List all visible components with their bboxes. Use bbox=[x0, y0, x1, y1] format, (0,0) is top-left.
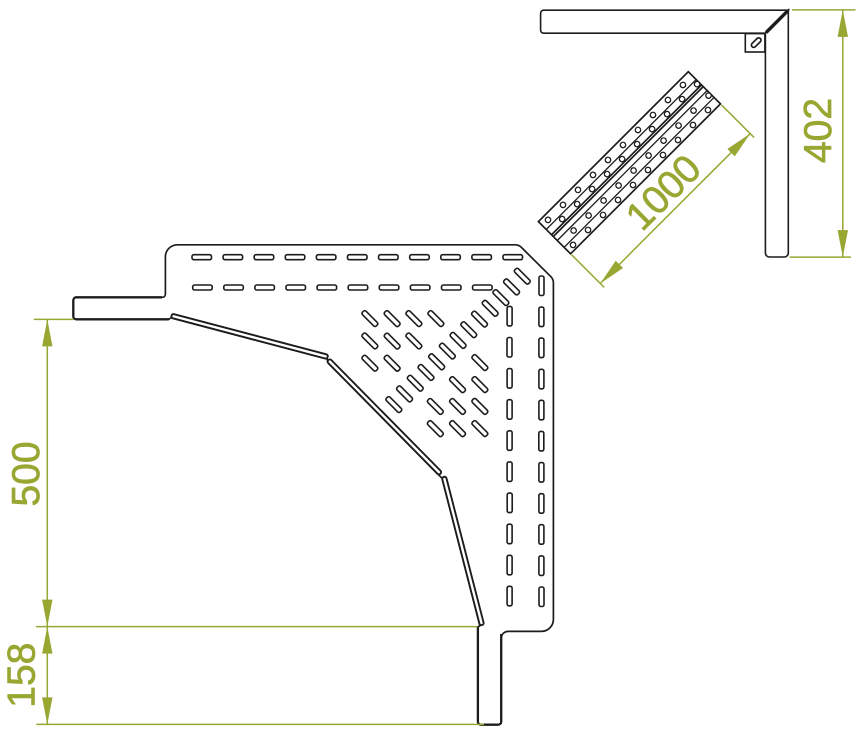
svg-text:158: 158 bbox=[1, 643, 44, 708]
svg-text:500: 500 bbox=[5, 441, 48, 506]
svg-text:402: 402 bbox=[797, 98, 840, 163]
